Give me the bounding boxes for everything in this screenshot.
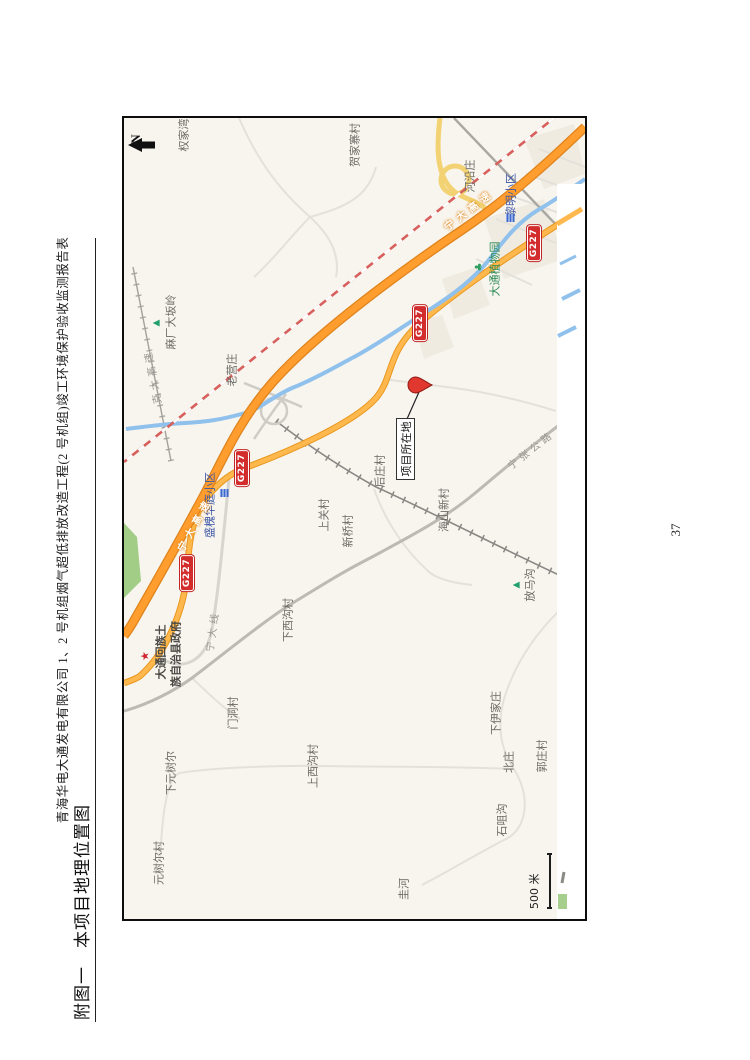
map-label: 上关村 bbox=[319, 499, 330, 532]
scale-bar: 500 米 bbox=[526, 853, 552, 909]
map-label: 大通植物园 bbox=[490, 242, 501, 297]
mountain-icon: ▲ bbox=[513, 582, 522, 589]
map-label: 下伊家庄 bbox=[491, 691, 502, 735]
tile-strip bbox=[557, 184, 585, 919]
map-label: 北庄 bbox=[504, 751, 515, 773]
header-rule bbox=[95, 238, 96, 1022]
g227-shield: G227 bbox=[413, 305, 427, 341]
map-label: 贺家寨村 bbox=[350, 123, 361, 167]
building-icon bbox=[220, 489, 229, 497]
scale-bar-line bbox=[547, 853, 552, 909]
map-label: 上西沟村 bbox=[308, 744, 319, 788]
map-label: 元树尔村 bbox=[154, 841, 165, 885]
north-arrow-icon bbox=[128, 136, 156, 154]
map-label: 门洞村 bbox=[228, 697, 239, 730]
map-label: 族自治县政府 bbox=[171, 621, 182, 687]
map-label: 黎明小区 bbox=[506, 173, 517, 217]
document-page: 青海华电大通发电有限公司 1、2 号机组烟气超低排放改造工程(2 号机组)竣工环… bbox=[0, 0, 750, 1060]
map-label: 石咀沟 bbox=[497, 804, 508, 837]
g227-shield: G227 bbox=[527, 225, 541, 261]
map-label: 河沿庄 bbox=[465, 160, 476, 193]
location-map: 权家湾贺家寨村河沿庄老营庄后庄村海山新村上关村新桥村门洞村下西沟村上西沟村下元树… bbox=[122, 116, 587, 921]
figure-title: 附图一 本项目地理位置图 bbox=[68, 804, 93, 1020]
map-label: 麻厂大坂岭 bbox=[166, 295, 177, 350]
project-pin-icon bbox=[407, 376, 433, 394]
page-number: 37 bbox=[668, 0, 684, 1060]
map-label: 下元树尔 bbox=[166, 751, 177, 795]
gov-icon: ★ bbox=[140, 651, 151, 661]
map-label: 老营庄 bbox=[227, 354, 238, 387]
building-icon bbox=[506, 214, 515, 222]
tree-icon: ♣ bbox=[475, 263, 485, 272]
scale-label: 500 米 bbox=[526, 853, 542, 909]
pin-leader-line bbox=[407, 392, 419, 419]
map-label: 大通回族土 bbox=[156, 625, 167, 680]
g227-shield: G227 bbox=[180, 555, 194, 591]
map-label: 权家湾 bbox=[179, 119, 190, 152]
g227-shield: G227 bbox=[235, 450, 249, 486]
project-label-box: 项目所在地 bbox=[396, 418, 415, 480]
map-label: 海山新村 bbox=[439, 488, 450, 532]
mountain-icon: ▲ bbox=[153, 320, 162, 327]
map-label: 放马沟 bbox=[525, 569, 536, 602]
map-label: 郭庄村 bbox=[537, 740, 548, 773]
map-label: 后庄村 bbox=[375, 455, 386, 488]
green-area bbox=[124, 523, 141, 598]
rotated-sheet: 青海华电大通发电有限公司 1、2 号机组烟气超低排放改造工程(2 号机组)竣工环… bbox=[0, 0, 750, 1060]
north-indicator: N bbox=[128, 124, 144, 154]
map-label: 下西沟村 bbox=[283, 598, 294, 642]
map-label: 新桥村 bbox=[343, 515, 354, 548]
map-label: 圭河 bbox=[399, 878, 410, 900]
